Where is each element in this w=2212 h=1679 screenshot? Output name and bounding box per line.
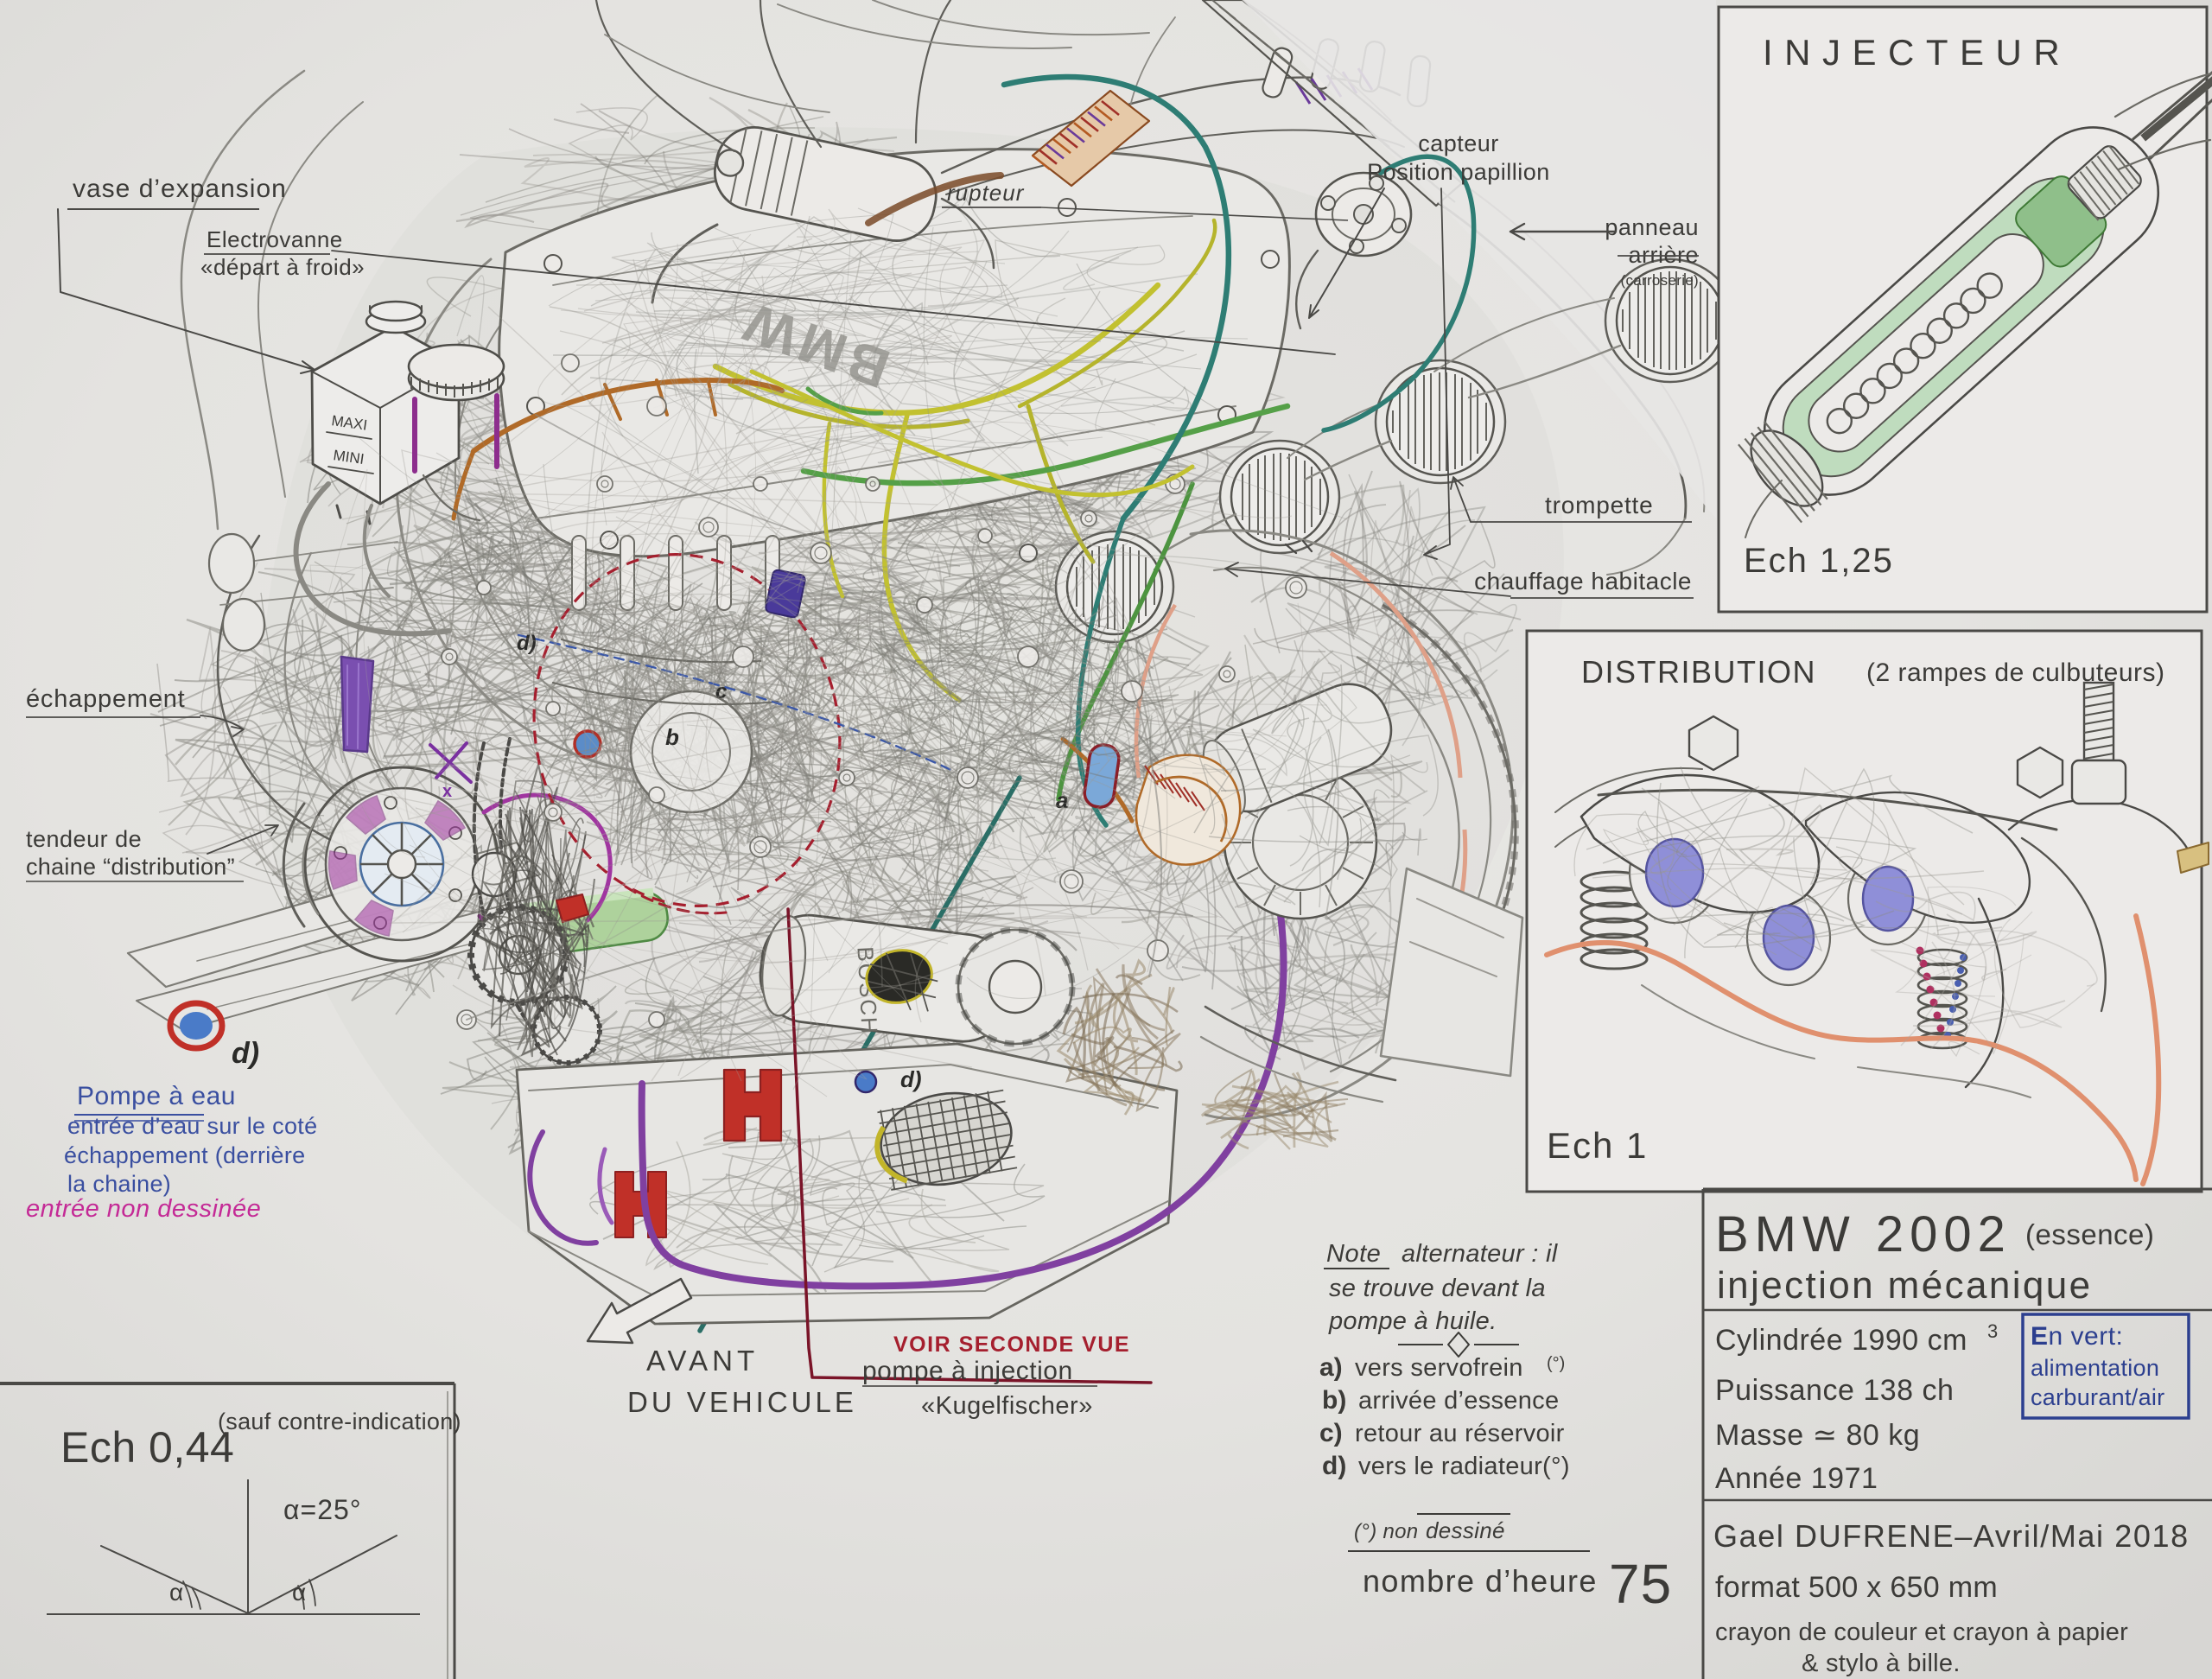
svg-text:Pompe à eau: Pompe à eau <box>77 1082 236 1110</box>
svg-text:75: 75 <box>1609 1553 1672 1615</box>
svg-text:Ech 1,25: Ech 1,25 <box>1744 542 1894 580</box>
svg-text:Année 1971: Année 1971 <box>1715 1462 1878 1495</box>
svg-text:Note: Note <box>1326 1240 1381 1268</box>
svg-text:pompe à injection: pompe à injection <box>862 1357 1073 1385</box>
svg-text:la chaine): la chaine) <box>67 1171 171 1197</box>
svg-text:alternateur : il: alternateur : il <box>1402 1240 1559 1268</box>
svg-text:«départ à froid»: «départ à froid» <box>200 254 365 280</box>
svg-text:DISTRIBUTION: DISTRIBUTION <box>1581 654 1816 690</box>
svg-text:entrée non dessinée: entrée non dessinée <box>26 1195 261 1223</box>
svg-text:VOIR SECONDE VUE: VOIR SECONDE VUE <box>893 1332 1130 1357</box>
svg-text:retour au réservoir: retour au réservoir <box>1355 1420 1565 1447</box>
svg-text:d): d) <box>900 1066 922 1092</box>
svg-text:Ech 0,44: Ech 0,44 <box>60 1423 234 1472</box>
svg-text:arrière: arrière <box>1628 242 1699 268</box>
svg-text:AVANT: AVANT <box>646 1345 759 1377</box>
svg-text:b: b <box>665 724 679 750</box>
svg-text:d): d) <box>517 632 537 655</box>
svg-text:α: α <box>292 1579 306 1606</box>
svg-text:injection mécanique: injection mécanique <box>1717 1264 2093 1307</box>
svg-text:En vert:: En vert: <box>2031 1322 2123 1351</box>
svg-text:vers le radiateur(°): vers le radiateur(°) <box>1358 1453 1570 1480</box>
svg-text:pompe à huile.: pompe à huile. <box>1328 1307 1497 1335</box>
svg-text:INJECTEUR: INJECTEUR <box>1763 32 2071 73</box>
svg-text:(°): (°) <box>1547 1354 1565 1373</box>
svg-text:nombre d’heure: nombre d’heure <box>1363 1563 1598 1599</box>
svg-text:d): d) <box>1322 1452 1346 1480</box>
svg-text:(carroserie): (carroserie) <box>1620 272 1699 289</box>
svg-text:panneau: panneau <box>1605 214 1699 240</box>
svg-text:Electrovanne: Electrovanne <box>207 226 343 252</box>
svg-text:arrivée d’essence: arrivée d’essence <box>1358 1387 1559 1415</box>
svg-text:Puissance 138 ch: Puissance 138 ch <box>1715 1374 1954 1407</box>
svg-text:3: 3 <box>1987 1320 1998 1342</box>
svg-text:vase d’expansion: vase d’expansion <box>73 175 287 203</box>
svg-text:«Kugelfischer»: «Kugelfischer» <box>921 1392 1093 1420</box>
svg-text:Masse ≃ 80 kg: Masse ≃ 80 kg <box>1715 1419 1920 1452</box>
svg-text:vers servofrein: vers servofrein <box>1355 1354 1523 1382</box>
svg-text:format 500 x 650 mm: format 500 x 650 mm <box>1715 1571 1998 1604</box>
svg-text:chaine “distribution”: chaine “distribution” <box>26 854 235 880</box>
svg-text:crayon de couleur et crayo: crayon de couleur et crayon à papier <box>1715 1619 2128 1646</box>
svg-text:Cylindrée 1990 cm: Cylindrée 1990 cm <box>1715 1324 1967 1357</box>
svg-text:(sauf contre-indication): (sauf contre-indication) <box>218 1409 461 1434</box>
svg-text:carburant/air: carburant/air <box>2031 1384 2164 1410</box>
svg-text:(°) non: (°) non <box>1354 1520 1418 1543</box>
svg-text:chauffage habitacle: chauffage habitacle <box>1474 568 1692 595</box>
svg-text:α=25°: α=25° <box>283 1494 362 1525</box>
svg-text:BMW 2002: BMW 2002 <box>1715 1206 2012 1262</box>
svg-text:DU VEHICULE: DU VEHICULE <box>627 1386 857 1418</box>
svg-text:d): d) <box>232 1037 259 1070</box>
svg-text:alimentation: alimentation <box>2031 1355 2159 1381</box>
svg-text:trompette: trompette <box>1545 492 1653 518</box>
svg-text:Gael DUFRENE–Avril/Mai 2018: Gael DUFRENE–Avril/Mai 2018 <box>1713 1518 2190 1554</box>
svg-text:a): a) <box>1319 1353 1343 1382</box>
svg-text:échappement: échappement <box>26 685 186 713</box>
svg-text:c): c) <box>1319 1419 1343 1447</box>
svg-text:& stylo à bille.: & stylo à bille. <box>1802 1650 1961 1677</box>
svg-text:(2 rampes de culbuteurs): (2 rampes de culbuteurs) <box>1866 658 2165 687</box>
svg-text:se trouve devant la: se trouve devant la <box>1329 1275 1546 1302</box>
svg-text:entrée d’eau sur le coté: entrée d’eau sur le coté <box>67 1113 317 1139</box>
svg-text:Position papillion: Position papillion <box>1367 159 1550 185</box>
svg-text:tendeur de: tendeur de <box>26 826 142 852</box>
svg-text:capteur: capteur <box>1418 130 1499 156</box>
svg-text:(essence): (essence) <box>2025 1218 2154 1250</box>
svg-text:α: α <box>169 1579 183 1606</box>
svg-text:dessiné: dessiné <box>1426 1517 1505 1543</box>
svg-text:échappement (derrière: échappement (derrière <box>64 1142 305 1168</box>
svg-text:Ech 1: Ech 1 <box>1547 1125 1648 1166</box>
svg-text:b): b) <box>1322 1386 1346 1415</box>
